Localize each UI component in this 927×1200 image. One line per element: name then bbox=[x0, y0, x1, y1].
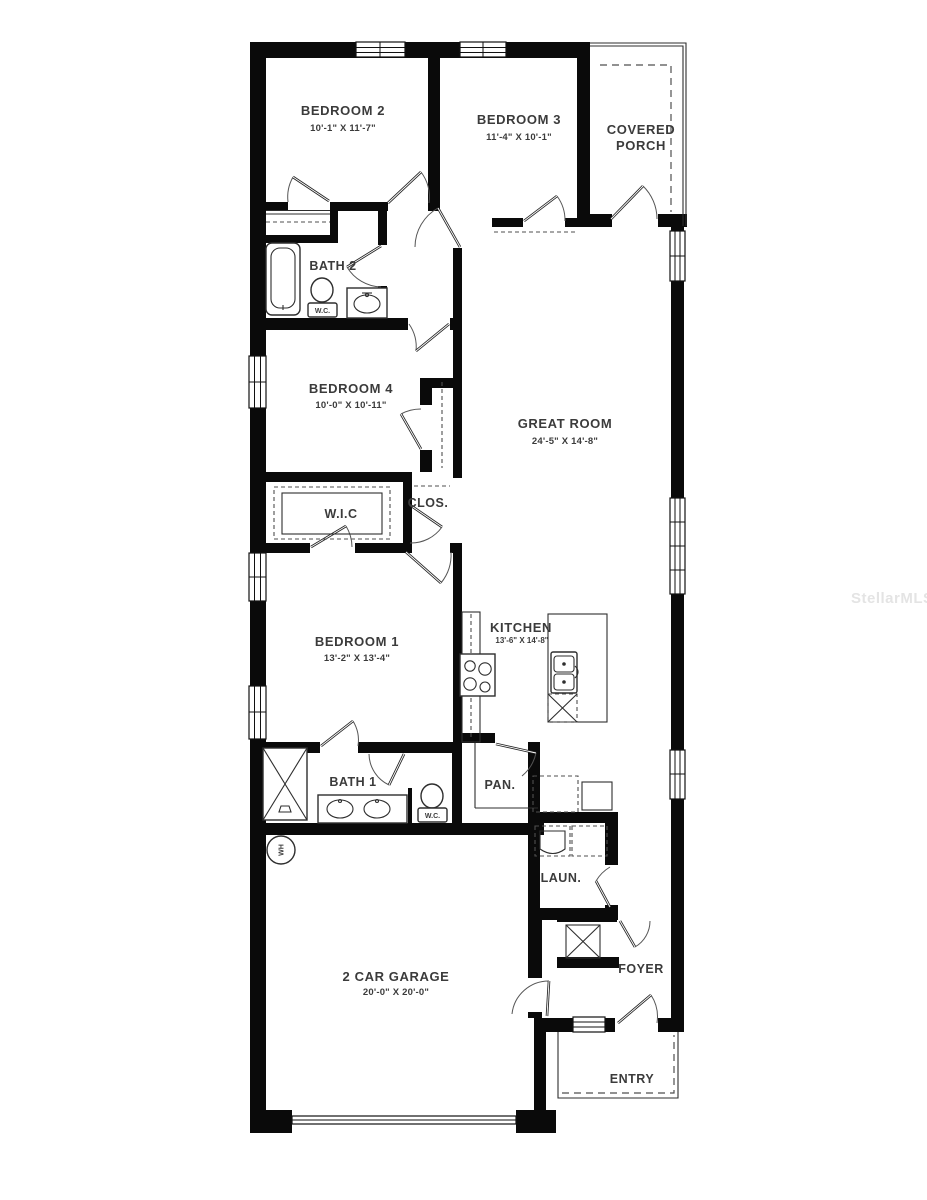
room-label-wic: W.I.C bbox=[324, 507, 357, 521]
svg-text:KITCHEN: KITCHEN bbox=[490, 620, 552, 635]
shower bbox=[263, 748, 307, 820]
room-label-garage: 2 CAR GARAGE20'-0" X 20'-0" bbox=[343, 969, 450, 998]
window-bedroom4 bbox=[249, 356, 266, 408]
svg-text:COVERED: COVERED bbox=[607, 122, 676, 137]
doors bbox=[288, 172, 658, 1023]
svg-text:11'-4" X 10'-1": 11'-4" X 10'-1" bbox=[486, 132, 552, 143]
window-bedroom1-b bbox=[249, 686, 266, 739]
door-garage bbox=[512, 981, 549, 1016]
svg-text:BEDROOM 2: BEDROOM 2 bbox=[301, 103, 385, 118]
door-laundry bbox=[596, 867, 610, 907]
room-label-bedroom1: BEDROOM 113'-2" X 13'-4" bbox=[315, 634, 399, 664]
vanity-bath1 bbox=[318, 795, 407, 823]
room-label-closet: CLOS. bbox=[408, 496, 449, 510]
floor-plan-drawing: W.C. W.C. WH BEDROOM 210'-1" X 11'-7" BE… bbox=[0, 0, 927, 1200]
room-label-great-room: GREAT ROOM24'-5" X 14'-8" bbox=[518, 416, 613, 447]
svg-text:13'-6" X 14'-8": 13'-6" X 14'-8" bbox=[495, 636, 548, 645]
svg-text:W.C.: W.C. bbox=[315, 308, 330, 315]
door-front bbox=[618, 995, 657, 1023]
door-hall-greatroom bbox=[415, 208, 460, 247]
room-label-pantry: PAN. bbox=[485, 778, 516, 792]
svg-text:BEDROOM 3: BEDROOM 3 bbox=[477, 112, 561, 127]
svg-text:LAUN.: LAUN. bbox=[541, 871, 582, 885]
door-bedroom4 bbox=[409, 324, 449, 351]
room-label-bedroom4: BEDROOM 410'-0" X 10'-11" bbox=[309, 381, 393, 411]
room-label-kitchen: KITCHEN13'-6" X 14'-8" bbox=[490, 620, 552, 645]
room-labels: BEDROOM 210'-1" X 11'-7" BEDROOM 311'-4"… bbox=[301, 103, 675, 1086]
dishwasher bbox=[548, 694, 577, 722]
svg-text:BATH 1: BATH 1 bbox=[329, 775, 376, 789]
svg-text:24'-5" X 14'-8": 24'-5" X 14'-8" bbox=[532, 436, 598, 447]
room-label-bath2: BATH 2 bbox=[309, 259, 356, 273]
svg-text:BATH 2: BATH 2 bbox=[309, 259, 356, 273]
coat-closet bbox=[566, 925, 600, 958]
svg-text:PORCH: PORCH bbox=[616, 138, 666, 153]
room-label-covered-porch: COVEREDPORCH bbox=[607, 122, 676, 153]
door-foyer-closet bbox=[620, 921, 650, 947]
window-bedroom2 bbox=[356, 42, 405, 57]
door-bedroom1 bbox=[406, 552, 451, 583]
room-label-bath1: BATH 1 bbox=[329, 775, 376, 789]
window-bedroom1-a bbox=[249, 553, 266, 601]
door-wic bbox=[311, 526, 352, 547]
entry-porch-outline bbox=[558, 1032, 678, 1098]
watermark: StellarMLS bbox=[851, 590, 927, 607]
door-bedroom2 bbox=[388, 172, 429, 203]
svg-text:W.I.C: W.I.C bbox=[324, 507, 357, 521]
dryer bbox=[572, 826, 607, 856]
kitchen-cabinet bbox=[582, 782, 612, 810]
washer bbox=[535, 826, 570, 856]
svg-text:GREAT ROOM: GREAT ROOM bbox=[518, 416, 613, 431]
sink-bath2 bbox=[347, 288, 387, 318]
fixtures: W.C. W.C. WH bbox=[263, 243, 612, 1124]
svg-text:PAN.: PAN. bbox=[485, 778, 516, 792]
door-bedroom4-closet bbox=[401, 409, 421, 449]
door-closet bbox=[410, 505, 442, 543]
door-porch bbox=[611, 186, 657, 219]
window-greatroom-a bbox=[670, 231, 685, 281]
garage-door bbox=[292, 1116, 516, 1124]
svg-text:13'-2" X 13'-4": 13'-2" X 13'-4" bbox=[324, 653, 390, 664]
svg-text:10'-0" X 10'-11": 10'-0" X 10'-11" bbox=[315, 400, 386, 411]
svg-text:20'-0" X 20'-0": 20'-0" X 20'-0" bbox=[363, 987, 429, 998]
bathtub bbox=[266, 243, 300, 315]
toilet-bath1: W.C. bbox=[418, 784, 447, 822]
room-label-entry: ENTRY bbox=[610, 1072, 655, 1086]
svg-text:CLOS.: CLOS. bbox=[408, 496, 449, 510]
svg-text:10'-1" X 11'-7": 10'-1" X 11'-7" bbox=[310, 123, 376, 134]
room-label-foyer: FOYER bbox=[618, 962, 664, 976]
door-bedroom2-closet bbox=[288, 177, 329, 202]
svg-text:2 CAR GARAGE: 2 CAR GARAGE bbox=[343, 969, 450, 984]
door-bath1 bbox=[321, 721, 358, 746]
window-bedroom3 bbox=[460, 42, 506, 57]
door-bedroom3 bbox=[524, 196, 565, 221]
room-label-bedroom2: BEDROOM 210'-1" X 11'-7" bbox=[301, 103, 385, 134]
cooktop bbox=[460, 654, 495, 696]
svg-text:BEDROOM 1: BEDROOM 1 bbox=[315, 634, 399, 649]
island-sink bbox=[551, 652, 578, 693]
room-label-laundry: LAUN. bbox=[541, 871, 582, 885]
water-heater: WH bbox=[267, 836, 295, 864]
floor-plan: W.C. W.C. WH BEDROOM 210'-1" X 11'-7" BE… bbox=[0, 0, 927, 1200]
svg-text:WH: WH bbox=[279, 844, 286, 856]
toilet-bath2: W.C. bbox=[308, 278, 337, 317]
window-greatroom-b bbox=[670, 498, 685, 594]
svg-text:FOYER: FOYER bbox=[618, 962, 664, 976]
svg-text:BEDROOM 4: BEDROOM 4 bbox=[309, 381, 393, 396]
window-kitchen bbox=[670, 750, 685, 799]
svg-text:ENTRY: ENTRY bbox=[610, 1072, 655, 1086]
svg-text:W.C.: W.C. bbox=[425, 813, 440, 820]
window-entry-sidelight bbox=[573, 1017, 605, 1032]
room-label-bedroom3: BEDROOM 311'-4" X 10'-1" bbox=[477, 112, 561, 143]
